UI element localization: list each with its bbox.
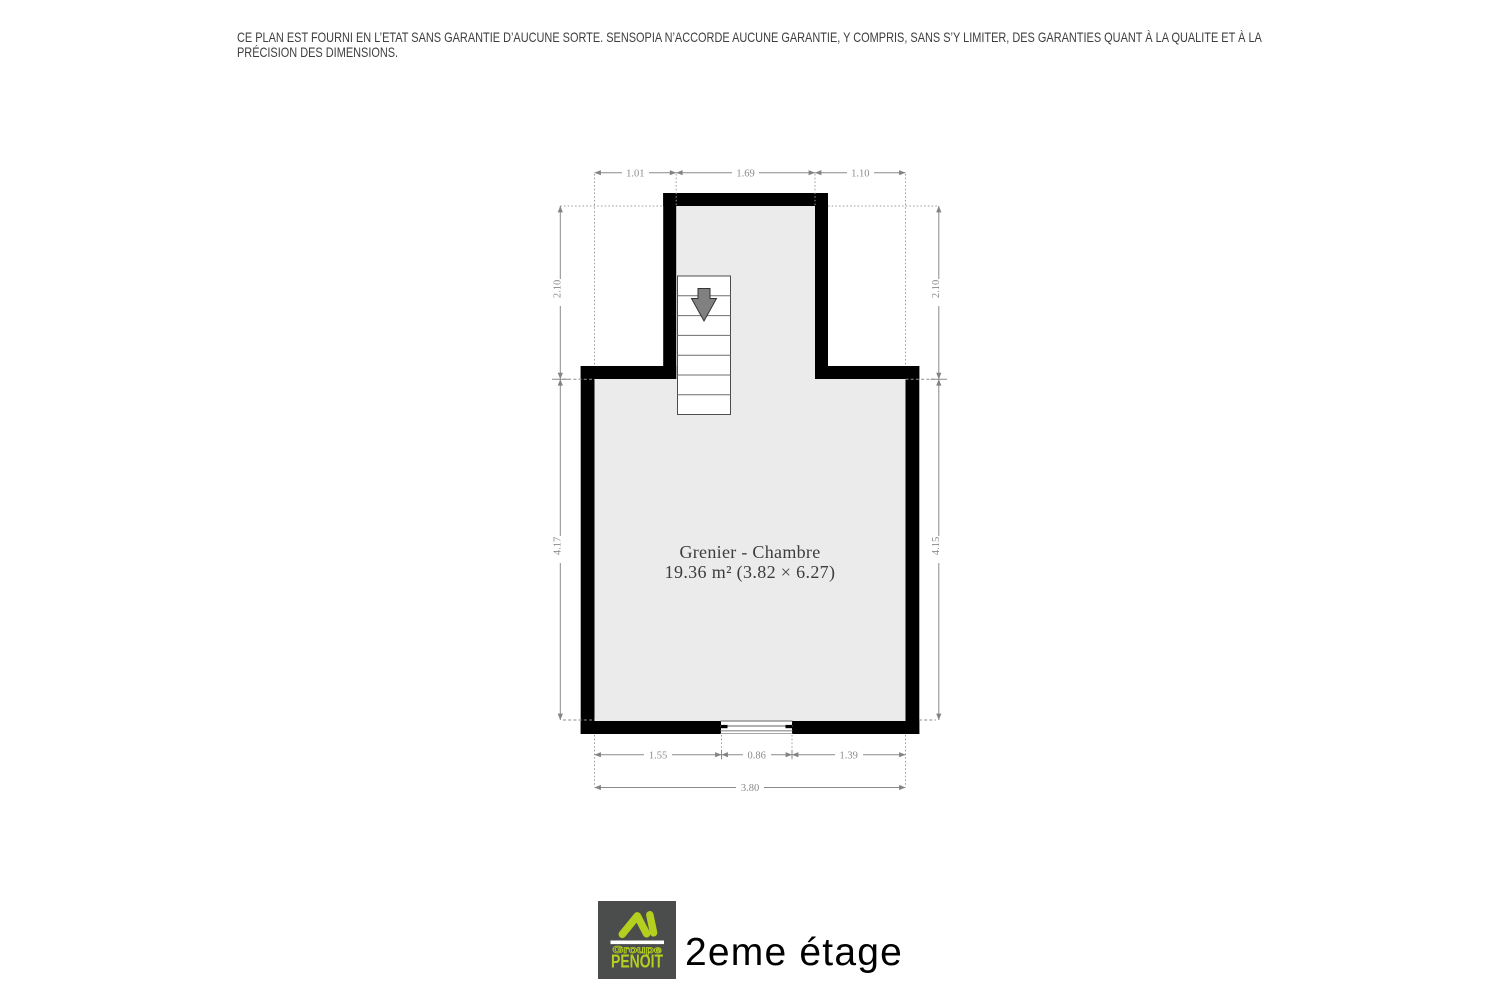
svg-text:1.10: 1.10 [851, 168, 869, 179]
svg-text:Grenier - Chambre: Grenier - Chambre [679, 542, 820, 562]
svg-text:4.15: 4.15 [931, 537, 942, 555]
svg-text:1.55: 1.55 [649, 750, 667, 761]
svg-text:PENOIT: PENOIT [611, 952, 663, 972]
svg-text:1.01: 1.01 [626, 168, 644, 179]
svg-text:3.80: 3.80 [741, 783, 759, 794]
svg-text:19.36 m² (3.82 × 6.27): 19.36 m² (3.82 × 6.27) [665, 562, 836, 583]
svg-text:1.69: 1.69 [736, 168, 754, 179]
svg-text:0.86: 0.86 [748, 750, 766, 761]
svg-text:1.39: 1.39 [840, 750, 858, 761]
svg-text:2.10: 2.10 [552, 280, 563, 298]
svg-text:2.10: 2.10 [931, 280, 942, 298]
svg-text:4.17: 4.17 [552, 537, 563, 555]
